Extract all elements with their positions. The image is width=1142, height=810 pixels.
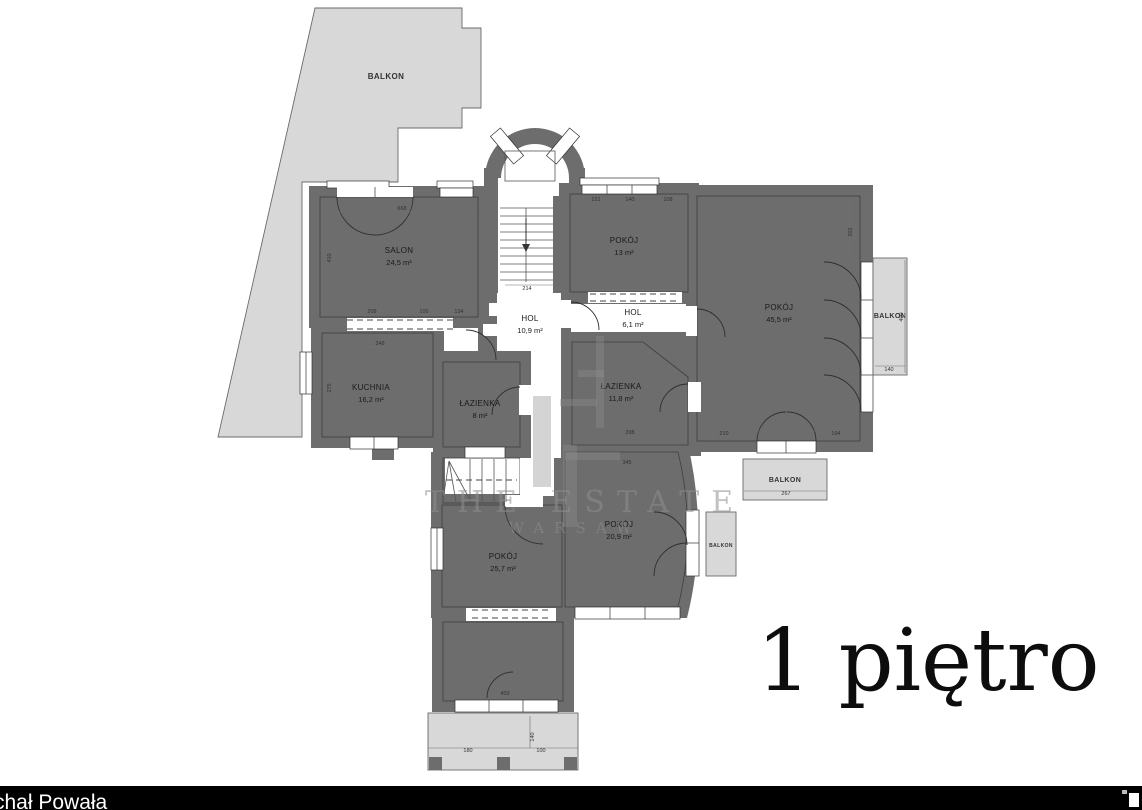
label-pokoj-45: POKÓJ [765,303,794,312]
dimension-label: 208 [367,309,376,315]
dimension-label: 348 [375,341,384,347]
dimension-label: 140 [530,732,536,741]
dimension-label: 668 [397,206,406,212]
watermark-logo-bar [578,370,604,377]
dimension-label: 400 [899,312,905,321]
dimension-label: 108 [663,197,672,203]
watermark-logo-bar [533,396,551,487]
dimension-label: 275 [327,383,333,392]
area-salon: 24,5 m² [386,258,412,267]
area-kuchnia: 16,2 m² [358,395,384,404]
area-lazienka-mala: 8 m² [473,411,489,420]
dimension-label: 140 [884,367,893,373]
label-pokoj-13: POKÓJ [610,236,639,245]
floor-plan-canvas: BALKON [0,0,1142,810]
dimension-label: 214 [522,286,531,292]
label-hol-maly: HOL [624,308,642,317]
balcony-small: BALKON [706,512,736,576]
balcony-top-left-label: BALKON [368,72,405,81]
footer-logo-mark-small [1122,790,1127,794]
footer-bar [0,786,1142,810]
area-pokoj-45: 45,5 m² [766,315,792,324]
dimension-label: 403 [500,691,509,697]
dimension-label: 100 [419,309,428,315]
watermark-line1: THE ESTATE [425,485,745,520]
dimension-label: 345 [622,460,631,466]
dimension-label: 180 [463,748,472,754]
area-hol-maly: 6,1 m² [622,320,644,329]
dimension-label: 194 [831,431,840,437]
dimension-label: 140 [625,197,634,203]
dimension-label: 134 [454,309,463,315]
area-pokoj-25: 25,7 m² [490,564,516,573]
watermark-logo-bar [560,399,597,406]
footer: chał Powała [0,786,1142,810]
label-kuchnia: KUCHNIA [352,383,390,392]
dimension-label: 100 [536,748,545,754]
label-hol-gorny: HOL [521,314,539,323]
dimension-label: 121 [591,197,600,203]
watermark-logo-bar [596,336,604,428]
area-pokoj-13: 13 m² [614,248,634,257]
label-pokoj-25: POKÓJ [489,552,518,561]
watermark-line2: WARSAW [509,519,642,537]
dimension-label: 410 [327,253,333,262]
label-lazienka-duza: ŁAZIENKA [600,382,641,391]
label-salon: SALON [385,246,414,255]
dimension-label: 210 [719,431,728,437]
balcony-middle-label: BALKON [769,477,801,484]
floor-title: 1 piętro [757,611,1100,711]
floor-plan-page: BALKON [0,0,1142,810]
dimension-label: 398 [625,430,634,436]
balcony-small-label: BALKON [709,543,733,549]
footer-logo-mark [1129,793,1139,807]
terrace [428,713,578,770]
area-lazienka-duza: 11,8 m² [609,394,634,403]
dimension-label: 201 [848,227,854,236]
footer-credit: chał Powała [0,791,108,810]
area-hol-gorny: 10,9 m² [517,326,543,335]
label-lazienka-mala: ŁAZIENKA [459,399,500,408]
dimension-label: 267 [781,491,790,497]
